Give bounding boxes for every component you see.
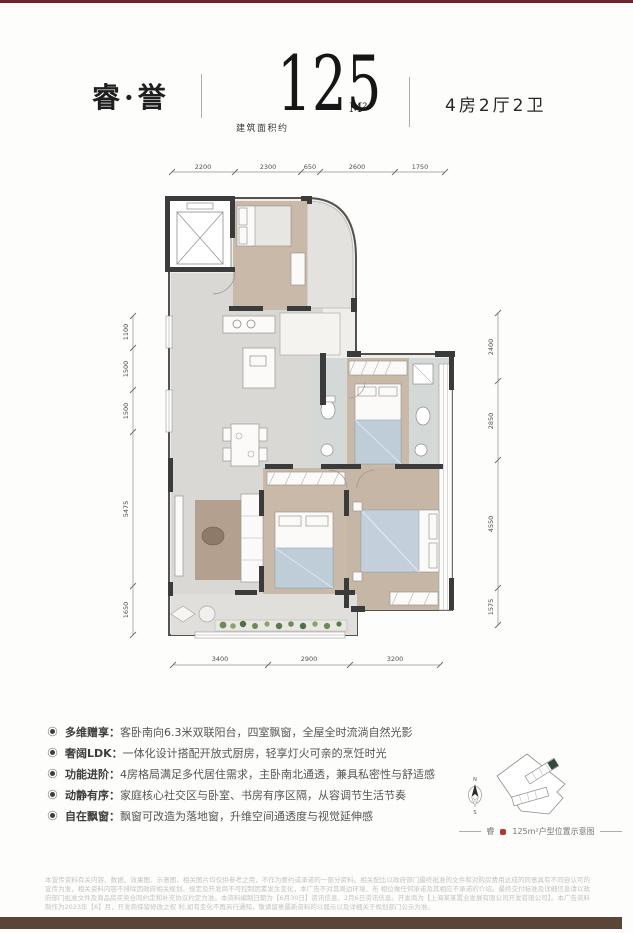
svg-text:1500: 1500 xyxy=(122,361,130,378)
caption-brand: 睿 xyxy=(486,826,494,837)
site-plan: N S xyxy=(455,750,627,826)
site-plan-caption: 睿 125m²户型位置示意图 xyxy=(448,826,633,837)
svg-text:4550: 4550 xyxy=(487,516,495,533)
utility-room xyxy=(280,313,340,355)
area-unit: M² xyxy=(349,101,368,116)
caption-text: 125m²户型位置示意图 xyxy=(512,826,594,837)
flyer-page: 睿·誉 建筑面积约 125 M² 4房2厅2卫 2200 2300 650 26… xyxy=(0,0,633,933)
svg-text:2900: 2900 xyxy=(301,655,318,663)
floor-plan: 2200 2300 650 2600 1750 1100 1500 1500 5… xyxy=(95,158,515,673)
bullet-icon xyxy=(50,729,55,734)
dimension-top: 2200 2300 650 2600 1750 xyxy=(169,163,448,175)
elevator-shaft xyxy=(165,196,235,272)
svg-text:1500: 1500 xyxy=(122,403,130,420)
svg-text:1100: 1100 xyxy=(122,324,130,341)
svg-text:N: N xyxy=(473,777,477,783)
svg-text:1750: 1750 xyxy=(412,163,429,171)
feature-item: 多维赠享： 客卧南向6.3米双联阳台，四室飘窗，全屋全时流淌自然光影 xyxy=(50,724,530,745)
svg-text:650: 650 xyxy=(304,163,316,171)
svg-text:2600: 2600 xyxy=(349,163,366,171)
svg-text:S: S xyxy=(473,810,476,816)
bullet-icon xyxy=(50,792,55,797)
svg-text:5475: 5475 xyxy=(122,501,130,518)
legal-disclaimer: 本宣传资料有关内容、数据、效果图、示意图、相关图片均仅供参考之用，不作为要约或承… xyxy=(45,876,590,912)
dimension-right: 2400 2850 4550 1575 xyxy=(487,310,501,628)
bay-window-band xyxy=(439,364,452,610)
bullet-icon xyxy=(50,813,55,818)
svg-text:3400: 3400 xyxy=(212,655,229,663)
svg-text:1650: 1650 xyxy=(122,602,130,619)
room-layout-label: 4房2厅2卫 xyxy=(445,91,546,116)
bullet-icon xyxy=(50,750,55,755)
dimension-bottom: 3400 2900 3200 xyxy=(170,655,443,668)
dimension-left: 1100 1500 1500 5475 1650 xyxy=(122,313,136,638)
footer-brand-bar xyxy=(0,917,622,929)
project-name: 睿·誉 xyxy=(92,76,170,116)
top-brand-strip xyxy=(0,0,633,3)
svg-text:1575: 1575 xyxy=(487,599,495,616)
header-divider-left xyxy=(201,74,202,118)
svg-text:2850: 2850 xyxy=(487,413,495,430)
caption-dash-right xyxy=(600,831,622,832)
svg-text:3200: 3200 xyxy=(387,655,404,663)
header-divider-right xyxy=(409,77,410,127)
svg-text:2300: 2300 xyxy=(260,163,277,171)
brand-dot-icon xyxy=(500,829,506,835)
compass-icon: N S xyxy=(469,777,482,816)
svg-text:2200: 2200 xyxy=(195,163,212,171)
bullet-icon xyxy=(50,771,55,776)
svg-text:2400: 2400 xyxy=(487,339,495,356)
caption-dash-left xyxy=(459,831,481,832)
